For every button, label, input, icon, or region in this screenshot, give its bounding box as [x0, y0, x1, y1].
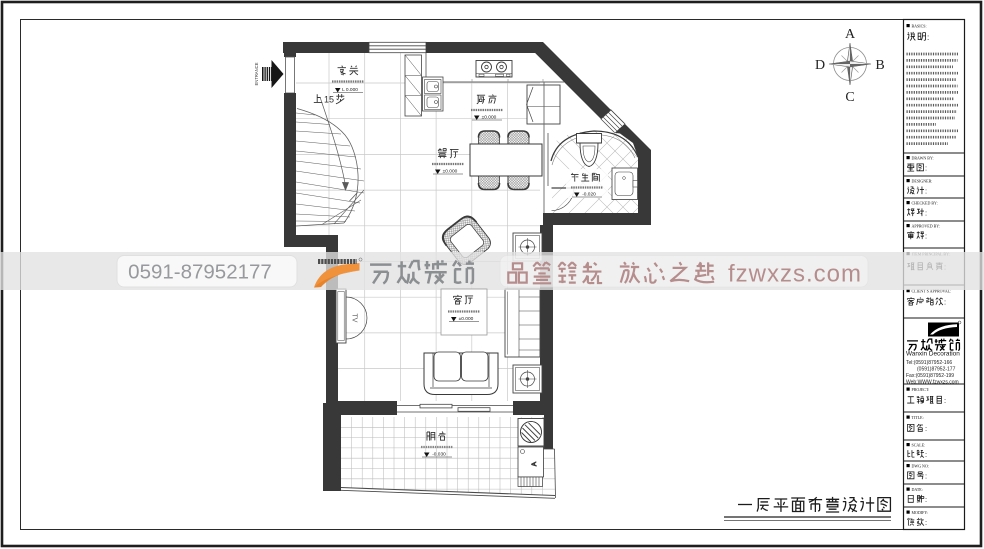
svg-text::: : — [925, 424, 927, 433]
svg-text::: : — [925, 209, 927, 218]
svg-text:-0.030: -0.030 — [432, 452, 446, 458]
svg-text::: : — [925, 187, 927, 196]
svg-text:TV: TV — [351, 314, 358, 323]
svg-text:(0591)87952-177: (0591)87952-177 — [917, 367, 956, 373]
svg-text:DESIGNER:: DESIGNER: — [912, 178, 933, 183]
svg-text::: : — [925, 232, 927, 241]
svg-text:DWG NO:: DWG NO: — [912, 463, 929, 468]
svg-text:APPROVED BY:: APPROVED BY: — [912, 223, 940, 228]
svg-text:L 0.000: L 0.000 — [342, 87, 358, 93]
svg-text:DATE:: DATE: — [912, 487, 923, 492]
svg-text:C: C — [845, 90, 854, 105]
svg-text:BASICS:: BASICS: — [912, 23, 927, 28]
svg-text::: : — [925, 164, 927, 173]
svg-text:±0.000: ±0.000 — [459, 316, 474, 322]
svg-text::: : — [925, 450, 927, 459]
svg-text:±0.000: ±0.000 — [443, 169, 458, 175]
svg-text:A: A — [845, 27, 856, 42]
svg-text::: : — [925, 495, 927, 504]
svg-text:Fax:(0591)87952-199: Fax:(0591)87952-199 — [906, 373, 954, 379]
svg-text:0591-87952177: 0591-87952177 — [128, 261, 272, 284]
svg-text::: : — [925, 472, 927, 481]
svg-text:MODIFY:: MODIFY: — [912, 510, 929, 515]
svg-text:DRAWN BY:: DRAWN BY: — [912, 155, 934, 160]
svg-text:Tel:(0591)87952-166: Tel:(0591)87952-166 — [906, 360, 952, 366]
svg-text:fzwxzs.com: fzwxzs.com — [728, 261, 862, 288]
svg-text:15: 15 — [324, 95, 334, 105]
svg-text:PROJECT:: PROJECT: — [912, 387, 930, 392]
svg-text:Wanxin Decoration: Wanxin Decoration — [906, 351, 960, 358]
svg-text:TITLE:: TITLE: — [912, 415, 924, 420]
svg-text::: : — [925, 518, 927, 527]
svg-text:B: B — [875, 58, 884, 73]
svg-text:CHECKED BY:: CHECKED BY: — [912, 200, 938, 205]
svg-text::: : — [927, 33, 929, 42]
svg-text:D: D — [815, 58, 825, 73]
svg-text:SCALE:: SCALE: — [912, 442, 926, 447]
svg-text:±0.000: ±0.000 — [482, 115, 497, 121]
svg-text::: : — [944, 396, 946, 405]
svg-text:-0.020: -0.020 — [582, 192, 596, 198]
svg-text::: : — [944, 298, 946, 307]
svg-text:Web:WWW.fzwxzs.com: Web:WWW.fzwxzs.com — [906, 380, 959, 386]
svg-text:ENTRANCE: ENTRANCE — [254, 62, 259, 85]
